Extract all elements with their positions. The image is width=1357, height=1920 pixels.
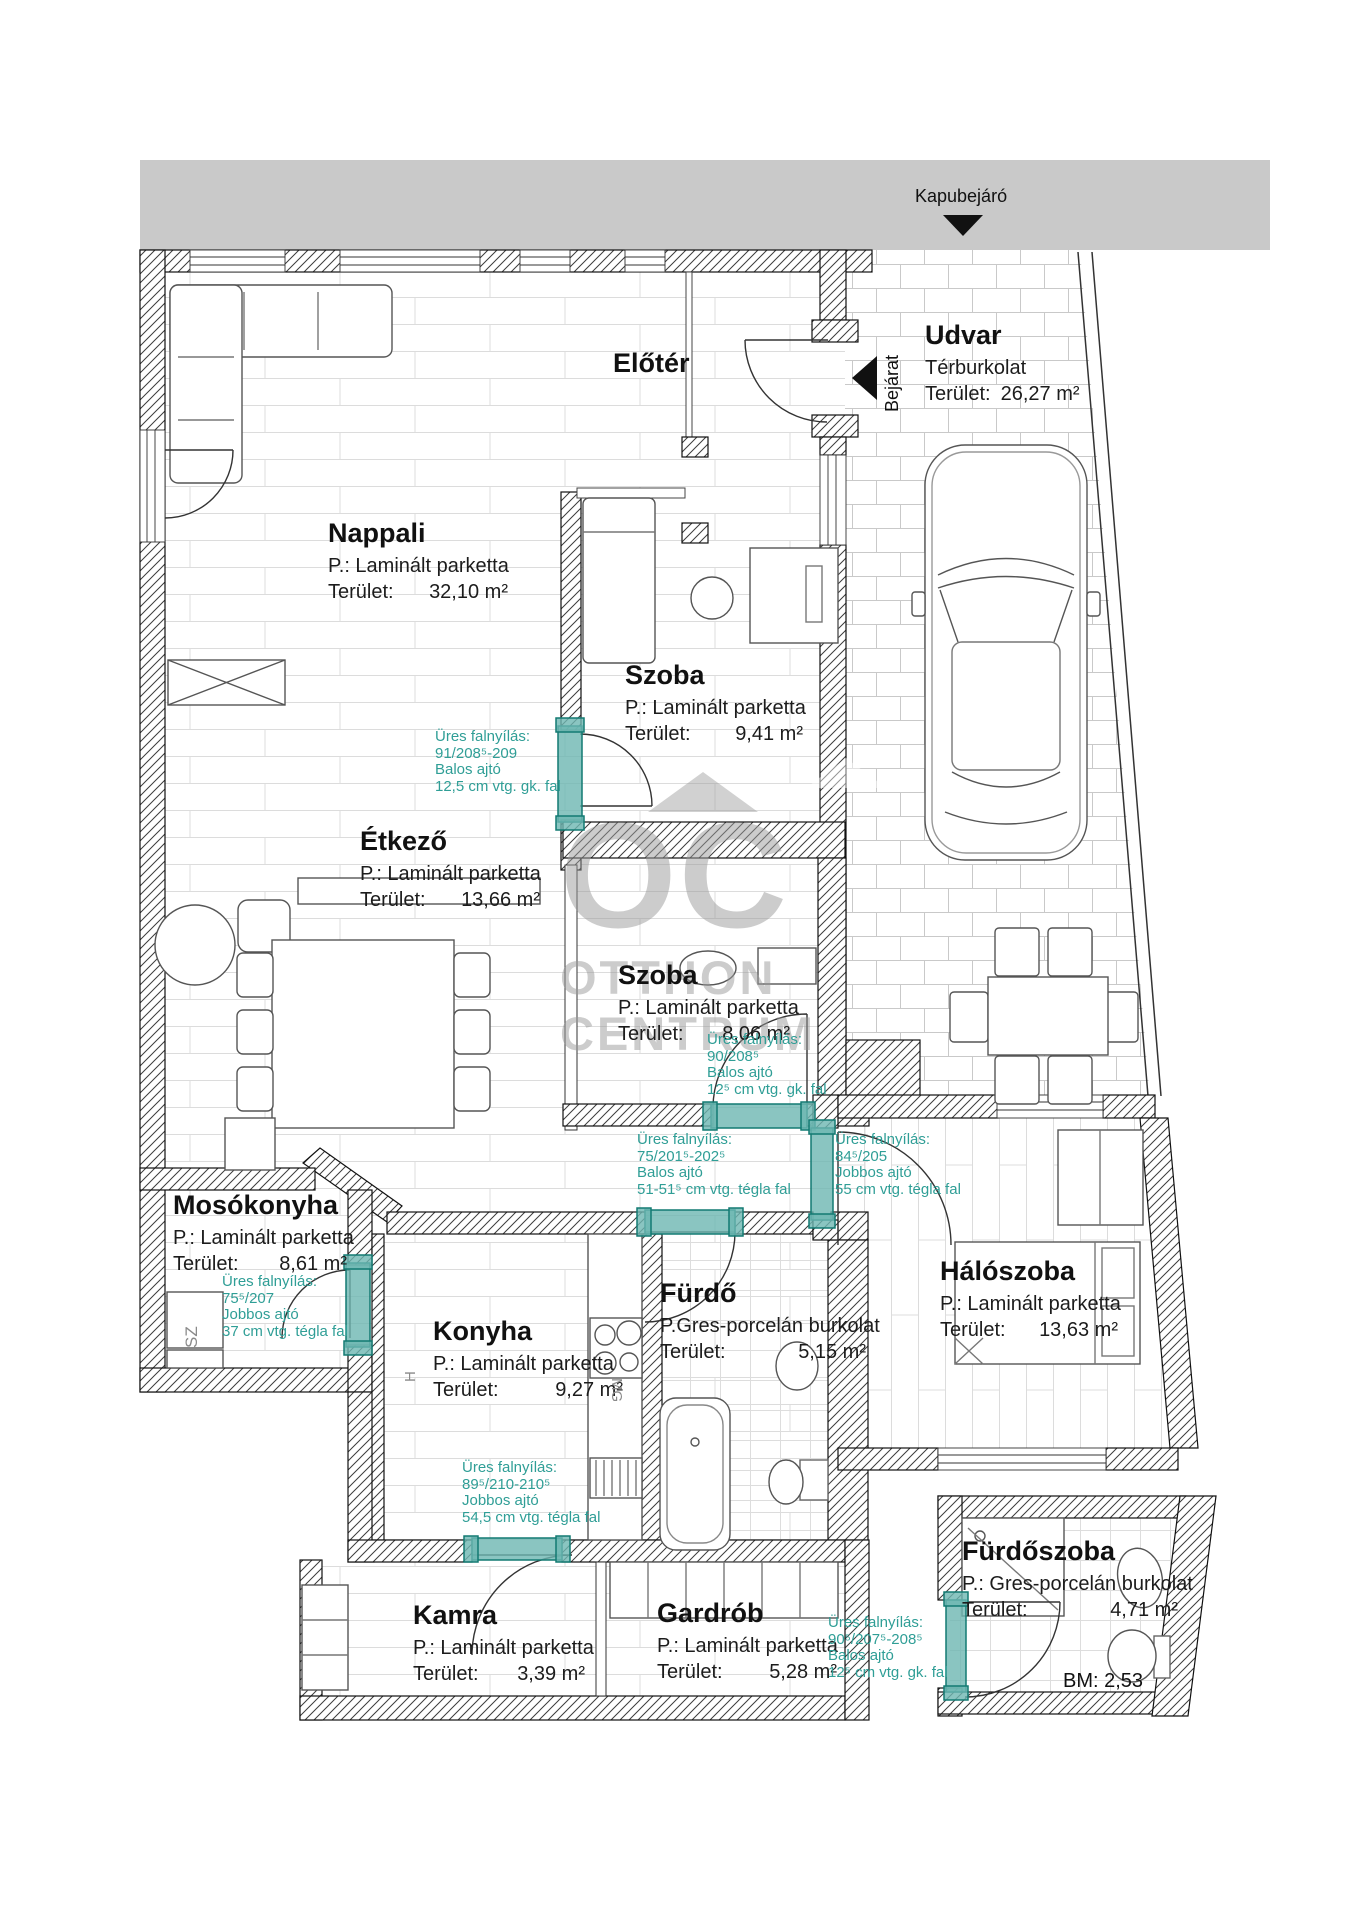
bathtub — [660, 1398, 730, 1550]
mg-marker: MG — [608, 1378, 625, 1402]
area-label: Terület: — [940, 1319, 1006, 1342]
area-label: Terület: — [618, 1023, 684, 1046]
room-floor: P.: Laminált parketta — [433, 1353, 623, 1376]
room-title: Hálószoba — [940, 1256, 1121, 1286]
room-floor: P.: Laminált parketta — [940, 1293, 1121, 1316]
room-title: Gardrób — [657, 1598, 838, 1628]
wall-opening-note: Üres falnyílás:91/208⁵-209 Balos ajtó12,… — [435, 729, 561, 795]
room-label-nappali: Nappali P.: Laminált parketta Terület:32… — [328, 518, 509, 604]
room-floor: P.: Laminált parketta — [360, 863, 541, 886]
area-label: Terület: — [625, 723, 691, 746]
wall-opening-note: Üres falnyílás:90/208⁵ Balos ajtó12⁵ cm … — [707, 1032, 827, 1098]
room-title: Kamra — [413, 1600, 594, 1630]
window — [820, 455, 846, 545]
room-label-furdoszoba: Fürdőszoba P.: Gres-porcelán burkolat Te… — [962, 1536, 1193, 1622]
opening-highlight — [809, 1120, 835, 1228]
gate-entrance-label: Kapubejáró — [915, 186, 1007, 207]
room-title: Fürdőszoba — [962, 1536, 1193, 1566]
area-label: Terület: — [433, 1379, 499, 1402]
room-label-udvar: Udvar Térburkolat Terület:26,27 m² — [925, 320, 1080, 406]
wall-opening-note: Üres falnyílás:75/201⁵-202⁵ Balos ajtó51… — [637, 1132, 791, 1198]
room-label-mosokonyha: Mosókonyha P.: Laminált parketta Terület… — [173, 1190, 354, 1276]
h-marker: H — [402, 1371, 419, 1382]
area-label: Terület: — [962, 1599, 1028, 1622]
area-value: 4,71 m² — [1110, 1599, 1178, 1622]
window — [190, 250, 285, 272]
room-title: Udvar — [925, 320, 1080, 350]
car — [912, 445, 1100, 860]
room-label-furdo: Fürdő P.Gres-porcelán burkolat Terület:5… — [660, 1278, 880, 1364]
room-floor: P.: Gres-porcelán burkolat — [962, 1573, 1193, 1596]
wall-opening-note: Üres falnyílás:89⁵/210-210⁵ Jobbos ajtó5… — [462, 1460, 600, 1526]
chair — [691, 577, 733, 619]
room-floor: P.: Laminált parketta — [618, 997, 799, 1020]
room-floor: P.: Laminált parketta — [625, 697, 806, 720]
room-title: Nappali — [328, 518, 509, 548]
street-band — [140, 160, 1270, 250]
room-label-eloter: Előtér — [613, 348, 690, 385]
toilet — [769, 1460, 828, 1504]
wardrobe — [1058, 1130, 1143, 1225]
area-value: 32,10 m² — [429, 581, 508, 604]
bm-height-label: BM: 2,53 — [1063, 1670, 1143, 1693]
room-title: Konyha — [433, 1316, 623, 1346]
area-value: 5,15 m² — [798, 1341, 866, 1364]
room-label-kamra: Kamra P.: Laminált parketta Terület:3,39… — [413, 1600, 594, 1686]
wall-opening-note: Üres falnyílás:90⁵/207⁵-208⁵ Balos ajtó1… — [828, 1615, 948, 1681]
window — [340, 250, 480, 272]
room-floor: P.: Laminált parketta — [328, 555, 509, 578]
area-value: 9,41 m² — [735, 723, 803, 746]
room-label-konyha: Konyha P.: Laminált parketta Terület:9,2… — [433, 1316, 623, 1402]
area-value: 13,66 m² — [461, 889, 540, 912]
area-label: Terület: — [413, 1663, 479, 1686]
room-title: Előtér — [613, 348, 690, 378]
room-floor: P.: Laminált parketta — [413, 1637, 594, 1660]
area-value: 13,63 m² — [1039, 1319, 1118, 1342]
area-label: Terület: — [328, 581, 394, 604]
window — [938, 1448, 1106, 1470]
area-label: Terület: — [925, 383, 991, 405]
wall-opening-note: Üres falnyílás:75⁵/207 Jobbos ajtó37 cm … — [222, 1274, 348, 1340]
area-label: Terület: — [660, 1341, 726, 1364]
opening-highlight — [637, 1208, 743, 1236]
sz-marker: SZ — [182, 1326, 202, 1348]
room-label-haloszoba: Hálószoba P.: Laminált parketta Terület:… — [940, 1256, 1121, 1342]
round-table — [155, 905, 235, 985]
room-label-szoba1: Szoba P.: Laminált parketta Terület:9,41… — [625, 660, 806, 746]
wall-opening-note: Üres falnyílás:84⁵/205 Jobbos ajtó55 cm … — [835, 1132, 961, 1198]
pantry-shelf — [302, 1585, 348, 1690]
room-floor: P.: Laminált parketta — [173, 1227, 354, 1250]
room-floor: P.: Laminált parketta — [657, 1635, 838, 1658]
window — [140, 430, 165, 542]
opening-highlight — [703, 1102, 815, 1130]
room-title: Szoba — [618, 960, 799, 990]
room-title: Fürdő — [660, 1278, 880, 1308]
area-label: Terület: — [657, 1661, 723, 1684]
area-value: 3,39 m² — [517, 1663, 585, 1686]
entrance-label: Bejárat — [882, 355, 903, 412]
room-label-etkezo: Étkező P.: Laminált parketta Terület:13,… — [360, 826, 541, 912]
bed-single — [583, 498, 655, 663]
room-floor: Térburkolat — [925, 357, 1080, 380]
area-value: 5,28 m² — [769, 1661, 837, 1684]
floorplan-page: OC OTTHON CENTRUM Kapubejáró Bejárat Udv… — [0, 0, 1357, 1920]
room-label-gardrob: Gardrób P.: Laminált parketta Terület:5,… — [657, 1598, 838, 1684]
area-value: 26,27 m² — [1001, 383, 1080, 405]
room-title: Mosókonyha — [173, 1190, 354, 1220]
window — [520, 250, 570, 272]
opening-highlight — [464, 1536, 570, 1562]
room-floor: P.Gres-porcelán burkolat — [660, 1315, 880, 1338]
room-title: Étkező — [360, 826, 541, 856]
room-title: Szoba — [625, 660, 806, 690]
area-label: Terület: — [360, 889, 426, 912]
window — [625, 250, 665, 272]
